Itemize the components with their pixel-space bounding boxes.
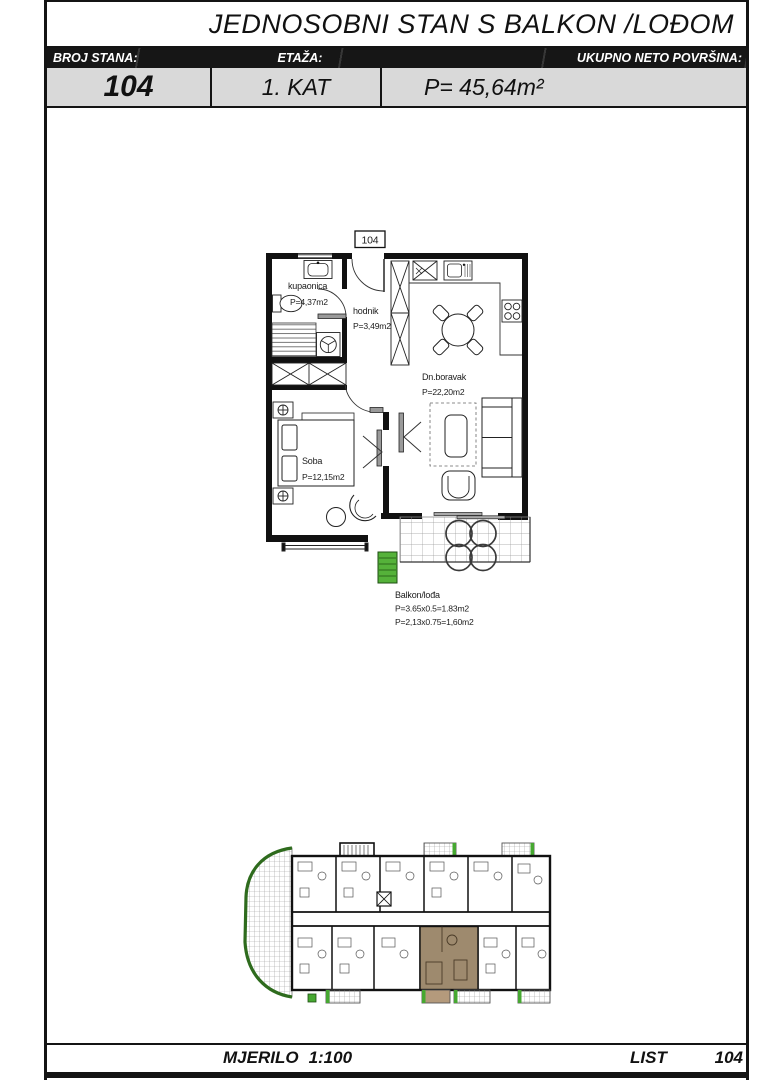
highlighted-unit-104 bbox=[420, 927, 478, 990]
dining-table bbox=[432, 304, 484, 356]
sofa bbox=[482, 398, 522, 477]
svg-text:P=22,20m2: P=22,20m2 bbox=[422, 387, 465, 397]
label-boravak: Dn.boravak bbox=[422, 372, 467, 382]
sheet-block: LIST 104 bbox=[630, 1048, 743, 1068]
svg-text:P=3,49m2: P=3,49m2 bbox=[353, 321, 391, 331]
svg-text:P=3.65x0.5=1.83m2: P=3.65x0.5=1.83m2 bbox=[395, 604, 469, 614]
scale-block: MJERILO 1:100 bbox=[223, 1048, 352, 1068]
sliding-doors bbox=[363, 413, 421, 468]
building-key-plan bbox=[240, 842, 576, 1006]
svg-text:P=12,15m2: P=12,15m2 bbox=[302, 472, 345, 482]
balcony-door-leaf bbox=[434, 513, 482, 516]
armchair bbox=[442, 471, 475, 500]
drawing-sheet: JEDNOSOBNI STAN S BALKON /LOĐOM BROJ STA… bbox=[0, 0, 759, 1080]
bedroom-door bbox=[345, 381, 383, 413]
header-value-row: 104 1. KAT P= 45,64m² bbox=[47, 68, 746, 108]
kitchen-cabinet bbox=[413, 261, 437, 280]
stove bbox=[502, 300, 522, 322]
wall-marker-top bbox=[273, 402, 293, 418]
wardrobe bbox=[272, 363, 346, 385]
sheet-title-row: JEDNOSOBNI STAN S BALKON /LOĐOM bbox=[47, 2, 746, 48]
planter bbox=[378, 552, 397, 583]
top-balconies bbox=[424, 843, 534, 856]
stool bbox=[327, 508, 346, 527]
bedroom-window bbox=[282, 543, 368, 551]
kitchen-sink bbox=[444, 261, 472, 280]
label-hodnik: hodnik bbox=[353, 306, 379, 316]
sheet-label: LIST bbox=[630, 1048, 667, 1068]
label-etaza: ETAŽA: bbox=[216, 48, 384, 68]
balcony bbox=[378, 513, 530, 584]
washer-area bbox=[272, 323, 340, 357]
curved-terrace bbox=[245, 848, 292, 997]
label-kupaonica: kupaonica bbox=[288, 281, 327, 291]
sheet-number: 104 bbox=[715, 1048, 743, 1068]
wall-marker-bottom bbox=[273, 488, 293, 504]
unit-number-tag: 104 bbox=[355, 231, 385, 248]
sheet-title: JEDNOSOBNI STAN S BALKON /LOĐOM bbox=[209, 9, 746, 40]
entry-door bbox=[352, 259, 384, 292]
frame-bottom-border bbox=[44, 1072, 749, 1078]
scale-label: MJERILO bbox=[223, 1048, 299, 1068]
svg-text:P=4,37m2: P=4,37m2 bbox=[290, 297, 328, 307]
bottom-balconies bbox=[308, 990, 550, 1003]
footer-divider bbox=[44, 1043, 749, 1045]
svg-text:104: 104 bbox=[362, 235, 379, 247]
desk-chair bbox=[350, 495, 376, 521]
bathroom-sink bbox=[304, 261, 332, 279]
label-broj-stana: BROJ STANA: bbox=[47, 48, 216, 68]
tall-cabinet bbox=[391, 261, 409, 365]
header-label-band: BROJ STANA: ETAŽA: UKUPNO NETO POVRŠINA: bbox=[47, 48, 746, 68]
value-unit-number: 104 bbox=[47, 68, 212, 106]
label-soba: Soba bbox=[302, 456, 322, 466]
svg-text:P=2,13x0.75=1,60m2: P=2,13x0.75=1,60m2 bbox=[395, 617, 474, 627]
value-area: P= 45,64m² bbox=[382, 68, 746, 106]
label-neto-povrsina: UKUPNO NETO POVRŠINA: bbox=[384, 48, 746, 68]
bathroom-window bbox=[298, 254, 332, 258]
frame-right-border bbox=[746, 0, 749, 1080]
value-floor: 1. KAT bbox=[212, 68, 382, 106]
label-balkon: Balkon/lođa bbox=[395, 590, 440, 600]
frame-left-border bbox=[44, 0, 47, 1080]
scale-value: 1:100 bbox=[309, 1048, 352, 1068]
coffee-table bbox=[430, 403, 476, 466]
unit-floor-plan: 104 bbox=[258, 226, 548, 630]
elevator-core bbox=[377, 892, 391, 906]
